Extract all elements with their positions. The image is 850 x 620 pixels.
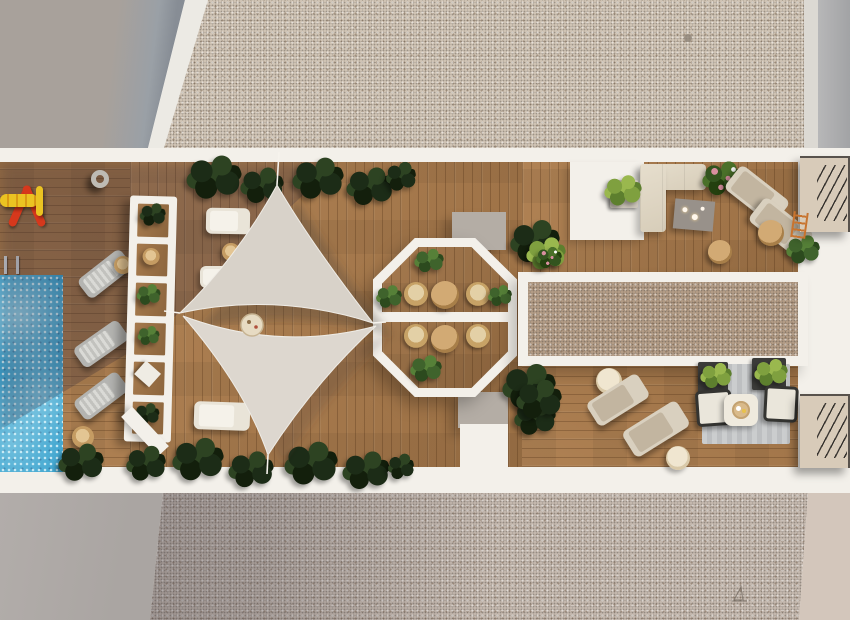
ottoman-table — [724, 394, 758, 426]
sun-lounger — [200, 266, 238, 288]
sun-lounger — [194, 401, 251, 431]
dining-chair — [466, 324, 490, 348]
tropical-plant — [292, 156, 344, 202]
octagon-center-beam — [373, 312, 517, 322]
roof-vent-mark — [730, 583, 752, 605]
tropical-plant — [186, 154, 242, 202]
octagon-dining-deck — [373, 238, 517, 397]
side-table — [142, 247, 159, 264]
dining-table — [431, 281, 459, 309]
dining-table — [431, 325, 459, 353]
sofa-seat — [640, 164, 666, 232]
tropical-plant — [516, 378, 562, 422]
planter-shrub — [700, 362, 732, 390]
octagon-shrub — [376, 284, 402, 310]
folded-chair — [134, 361, 161, 388]
tropical-plant — [386, 160, 416, 194]
planter-plant — [137, 324, 160, 347]
candle — [700, 207, 704, 211]
octagon-shrub — [410, 354, 442, 384]
dining-chair — [404, 282, 428, 306]
trellis-cell — [136, 243, 168, 276]
octagon-shrub — [414, 248, 444, 274]
palm-plant — [604, 174, 642, 208]
side-table — [758, 220, 784, 246]
planter-plant — [136, 283, 161, 308]
tropical-plant — [240, 166, 284, 206]
trellis-cell — [135, 283, 167, 316]
armchair — [763, 385, 799, 423]
pool-float-toy — [0, 172, 52, 228]
side-table — [708, 240, 732, 264]
roof-drain-dot — [684, 34, 692, 42]
stair-landing-bottom — [800, 394, 850, 468]
trellis-cell — [137, 204, 169, 237]
tray-item — [742, 409, 746, 413]
dining-chair — [404, 324, 428, 348]
coffee-table — [673, 198, 715, 231]
tropical-plant — [228, 450, 274, 490]
walk-path-south — [460, 424, 508, 492]
planter-shrub — [754, 358, 788, 388]
flowering-shrub — [536, 246, 562, 270]
candle — [692, 214, 699, 221]
upper-right-wall — [818, 0, 850, 148]
float-body — [0, 194, 38, 207]
lower-left-apron — [0, 493, 170, 620]
gravel-patio — [528, 282, 798, 356]
tropical-plant — [126, 444, 166, 484]
tropical-plant — [284, 440, 338, 488]
float-tail — [36, 186, 43, 216]
sun-lounger — [206, 208, 250, 235]
dining-chair — [466, 282, 490, 306]
concrete-pad-bottom — [458, 392, 508, 428]
planter-plant — [139, 202, 166, 229]
life-ring — [91, 170, 109, 188]
tropical-plant — [172, 436, 224, 484]
pouf-table — [666, 446, 690, 470]
trellis-cell — [133, 362, 165, 395]
serving-tray — [732, 401, 750, 419]
tropical-plant — [342, 450, 390, 492]
tropical-plant — [58, 442, 104, 484]
octagon-shrub — [488, 284, 512, 308]
trellis-cell — [134, 322, 166, 355]
side-table — [222, 243, 240, 261]
candle — [682, 207, 687, 212]
tray-item — [736, 406, 741, 411]
rooftop-terrace-render — [0, 0, 850, 620]
tropical-plant — [388, 452, 414, 482]
